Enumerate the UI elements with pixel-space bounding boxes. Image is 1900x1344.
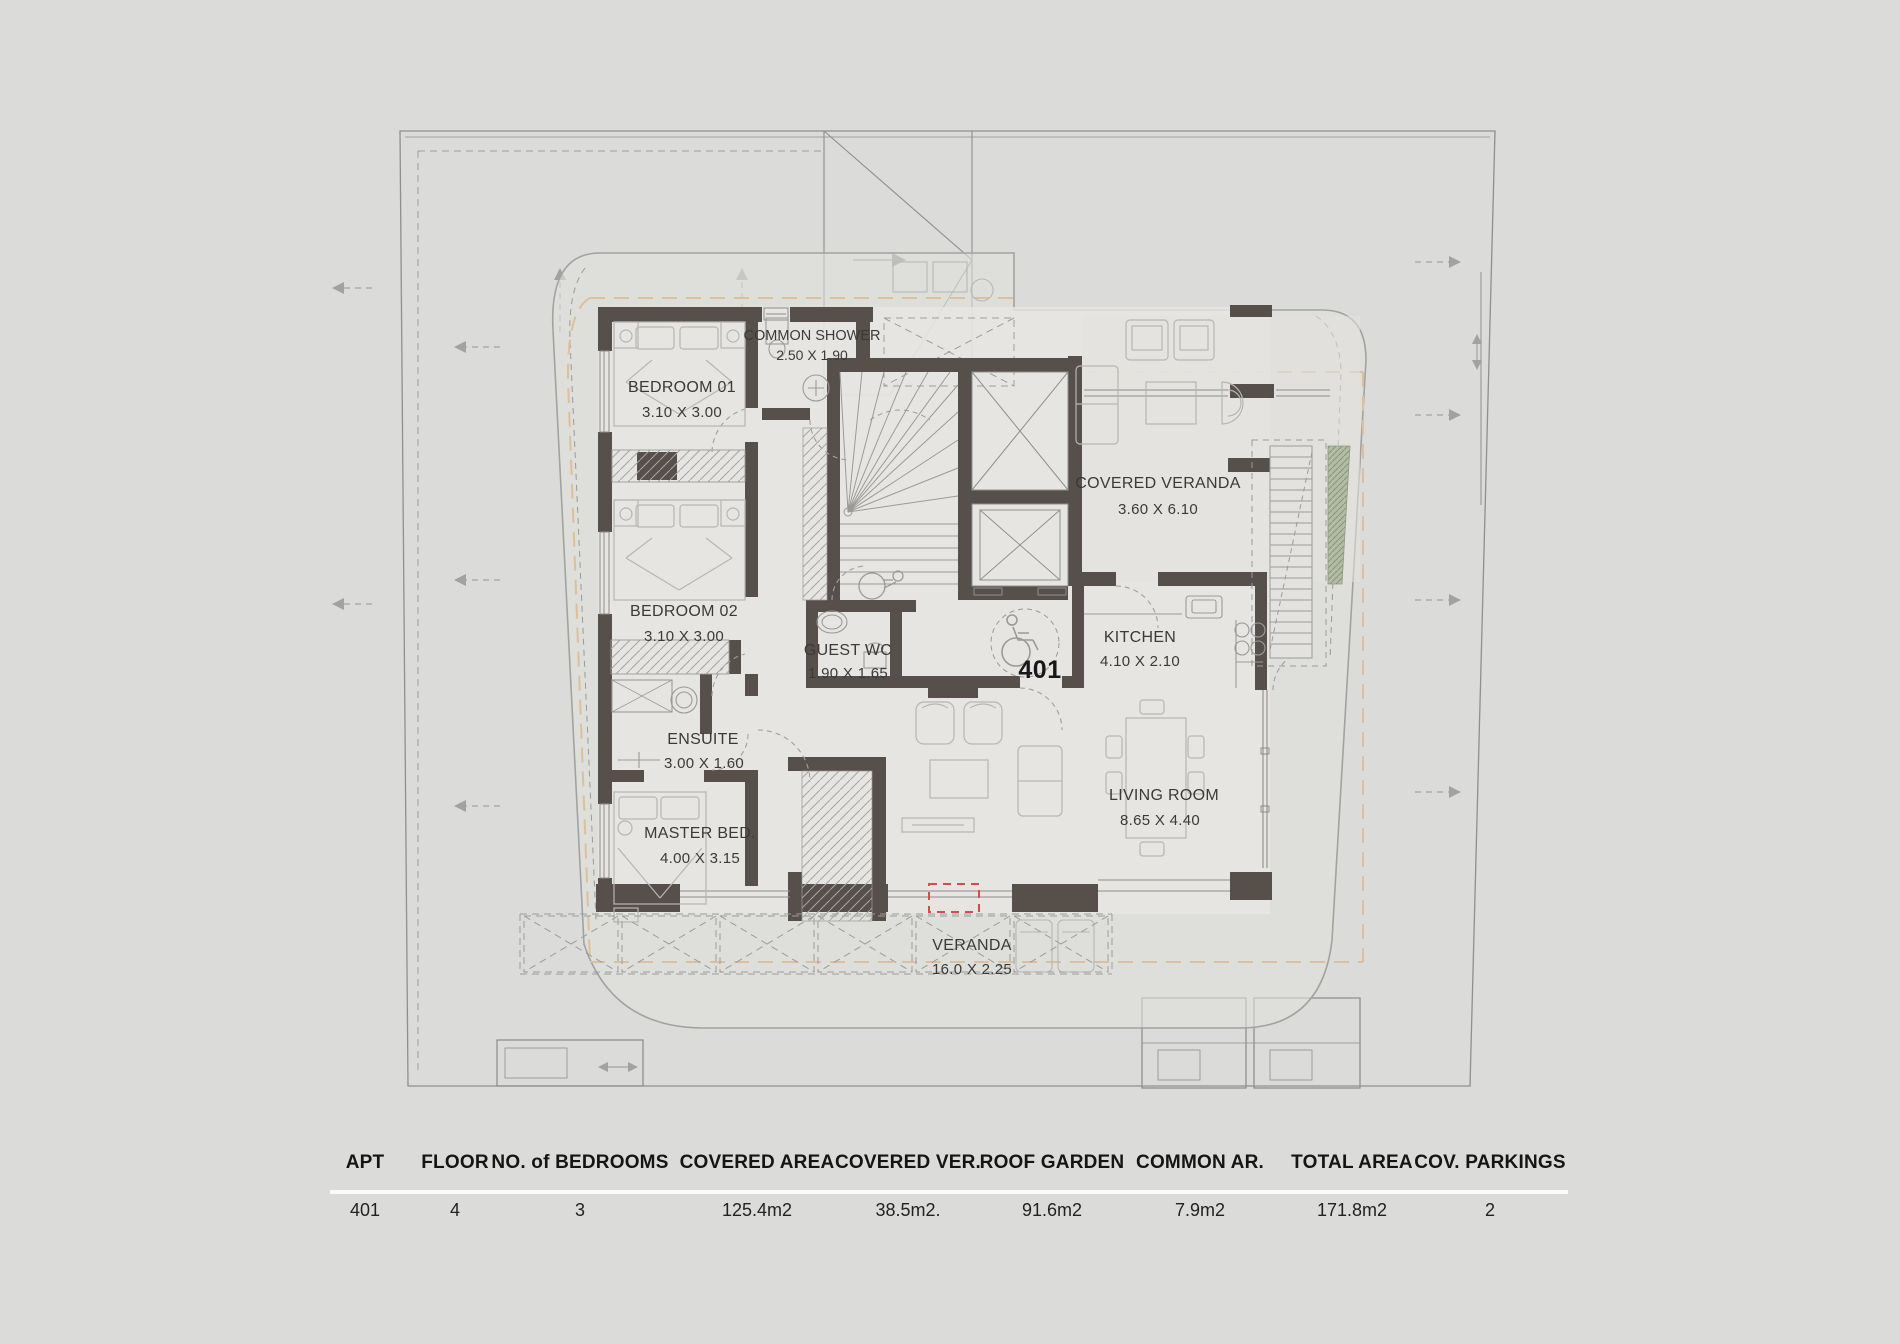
room-label-kitchen: KITCHEN [1104,629,1176,646]
table-header: COVERED AREA [680,1152,835,1174]
room-label-bedroom-01: BEDROOM 01 [628,379,736,396]
room-dims-covered-veranda: 3.60 X 6.10 [1118,501,1198,518]
table-col-floor: FLOOR 4 [421,1152,489,1221]
table-col-cov-parkings: COV. PARKINGS 2 [1414,1152,1565,1221]
room-dims-living-room: 8.65 X 4.40 [1120,812,1200,829]
table-value: 91.6m2 [980,1200,1125,1221]
storage-hatch [802,771,872,921]
room-dims-ensuite: 3.00 X 1.60 [664,755,744,772]
room-dims-bedroom-02: 3.10 X 3.00 [644,628,724,645]
shaft-hatch [803,428,827,600]
right-arrow-icon [1415,256,1461,798]
room-dims-kitchen: 4.10 X 2.10 [1100,653,1180,670]
room-dims-bedroom-01: 3.10 X 3.00 [642,404,722,421]
table-col-bedrooms: NO. of BEDROOMS 3 [491,1152,668,1221]
apartment-number-label: 401 [1018,656,1061,684]
table-col-covered-area: COVERED AREA 125.4m2 [680,1152,835,1221]
table-header: COVERED VER. [835,1152,981,1174]
table-col-common-ar: COMMON AR. 7.9m2 [1136,1152,1264,1221]
table-value: 7.9m2 [1136,1200,1264,1221]
room-label-ensuite: ENSUITE [667,731,738,748]
room-dims-common-shower: 2.50 X 1.90 [776,347,848,363]
room-label-living-room: LIVING ROOM [1109,787,1219,804]
room-dims-guest-wc: 1.90 X 1.65 [808,665,888,682]
left-arrow-icon [332,282,500,812]
table-col-apt: APT 401 [346,1152,385,1221]
table-value: 171.8m2 [1291,1200,1413,1221]
table-col-total-area: TOTAL AREA 171.8m2 [1291,1152,1413,1221]
table-col-covered-ver: COVERED VER. 38.5m2. [835,1152,981,1221]
table-value: 4 [421,1200,489,1221]
table-col-roof-garden: ROOF GARDEN 91.6m2 [980,1152,1125,1221]
room-dims-veranda: 16.0 X 2.25 [932,961,1012,978]
table-header: ROOF GARDEN [980,1152,1125,1174]
covered-veranda-floor [1082,316,1360,582]
room-label-common-shower: COMMON SHOWER [744,328,881,344]
room-label-covered-veranda: COVERED VERANDA [1075,475,1240,492]
table-header: FLOOR [421,1152,489,1174]
room-label-guest-wc: GUEST WC [804,642,892,659]
table-value: 125.4m2 [680,1200,835,1221]
table-header: TOTAL AREA [1291,1152,1413,1174]
table-header: COV. PARKINGS [1414,1152,1565,1174]
room-label-bedroom-02: BEDROOM 02 [630,603,738,620]
table-value: 38.5m2. [835,1200,981,1221]
room-dims-master-bed: 4.00 X 3.15 [660,850,740,867]
room-label-veranda: VERANDA [932,937,1011,954]
table-value: 2 [1414,1200,1565,1221]
summary-table: APT 401 FLOOR 4 NO. of BEDROOMS 3 COVERE… [0,1152,1900,1262]
floor-plan-sheet: COMMON SHOWER 2.50 X 1.90 BEDROOM 01 3.1… [0,0,1900,1344]
floor-plan-drawing: COMMON SHOWER 2.50 X 1.90 BEDROOM 01 3.1… [0,0,1900,1344]
table-header: APT [346,1152,385,1174]
table-header: NO. of BEDROOMS [491,1152,668,1174]
table-value: 3 [491,1200,668,1221]
table-header: COMMON AR. [1136,1152,1264,1174]
table-value: 401 [346,1200,385,1221]
room-label-master-bed: MASTER BED. [644,825,756,842]
